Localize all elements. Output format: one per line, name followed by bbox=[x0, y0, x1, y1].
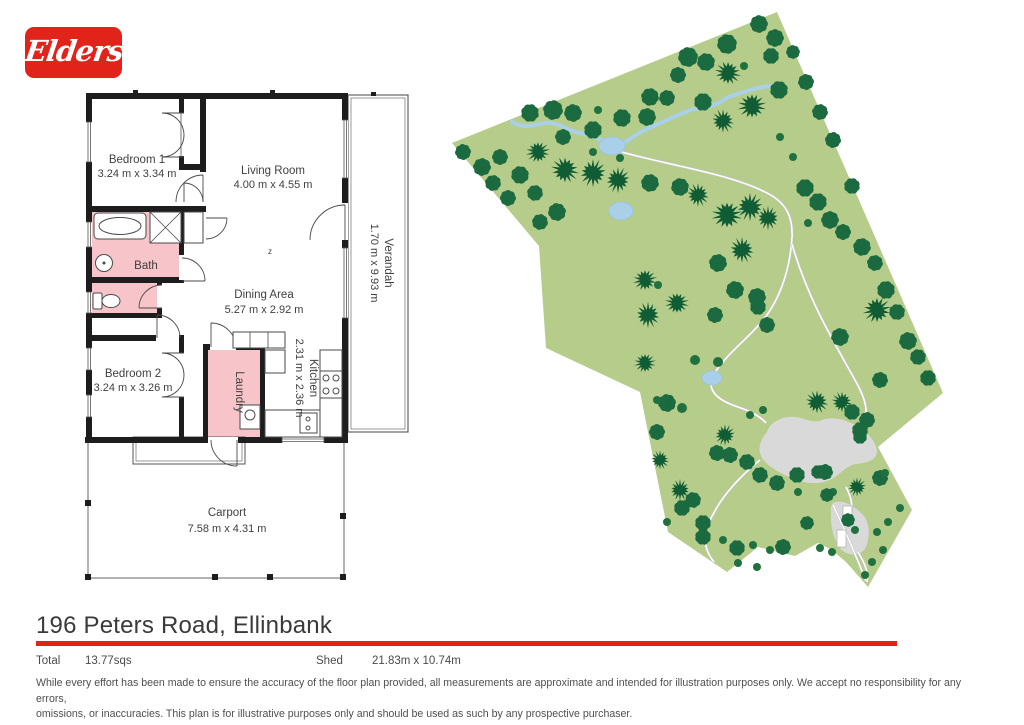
bedroom2-label: Bedroom 2 bbox=[105, 368, 161, 380]
laundry-label: Laundry bbox=[233, 371, 245, 413]
tree-dot-icon bbox=[794, 488, 802, 496]
tree-fluffy-icon bbox=[564, 104, 582, 122]
tree-fluffy-icon bbox=[759, 317, 775, 333]
kitchen-dims: 2.31 m x 2.36 m bbox=[293, 339, 305, 418]
toilet-cistern bbox=[93, 293, 102, 309]
floorplan-page: Elders bbox=[0, 0, 1024, 725]
tree-dot-icon bbox=[653, 396, 661, 404]
tree-dot-icon bbox=[879, 546, 887, 554]
tree-fluffy-icon bbox=[899, 332, 917, 350]
tree-dot-icon bbox=[881, 469, 889, 477]
tree-fluffy-icon bbox=[678, 47, 698, 67]
tree-fluffy-icon bbox=[659, 90, 675, 106]
tree-fluffy-icon bbox=[831, 328, 849, 346]
tree-fluffy-icon bbox=[649, 424, 665, 440]
tree-dot-icon bbox=[746, 411, 754, 419]
tree-dot-icon bbox=[804, 219, 812, 227]
tree-fluffy-icon bbox=[820, 488, 834, 502]
tree-dot-icon bbox=[753, 563, 761, 571]
tree-dot-icon bbox=[851, 526, 859, 534]
tree-fluffy-icon bbox=[835, 224, 851, 240]
tree-fluffy-icon bbox=[722, 447, 738, 463]
tree-dot-icon bbox=[713, 357, 723, 367]
tree-dot-icon bbox=[749, 541, 757, 549]
tree-fluffy-icon bbox=[707, 307, 723, 323]
closet bbox=[184, 212, 203, 243]
tree-fluffy-icon bbox=[750, 15, 768, 33]
tree-fluffy-icon bbox=[872, 372, 888, 388]
tree-fluffy-icon bbox=[841, 513, 855, 527]
total-value: 13.77sqs bbox=[85, 655, 132, 667]
tree-fluffy-icon bbox=[775, 539, 791, 555]
carport-dims: 7.58 m x 4.31 m bbox=[188, 523, 267, 535]
bedroom2-dims: 3.24 m x 3.26 m bbox=[94, 382, 173, 394]
kitchen-cabinet bbox=[265, 350, 285, 373]
dining-bench bbox=[233, 332, 285, 348]
tree-fluffy-icon bbox=[798, 74, 814, 90]
tree-fluffy-icon bbox=[769, 475, 785, 491]
pond bbox=[609, 202, 633, 220]
floor-plan: Bedroom 1 3.24 m x 3.34 m Living Room 4.… bbox=[80, 85, 420, 595]
tree-fluffy-icon bbox=[670, 67, 686, 83]
tree-fluffy-icon bbox=[555, 129, 571, 145]
dining-label: Dining Area bbox=[234, 289, 294, 301]
tree-dot-icon bbox=[789, 153, 797, 161]
tree-dot-icon bbox=[816, 544, 824, 552]
tree-fluffy-icon bbox=[766, 29, 784, 47]
tree-fluffy-icon bbox=[812, 104, 828, 120]
shed-building bbox=[837, 530, 846, 547]
tree-fluffy-icon bbox=[821, 211, 839, 229]
living-label: Living Room bbox=[241, 165, 305, 177]
tree-dot-icon bbox=[828, 548, 836, 556]
tree-fluffy-icon bbox=[500, 190, 516, 206]
tree-dot-icon bbox=[884, 518, 892, 526]
tree-dot-icon bbox=[896, 504, 904, 512]
tree-dot-icon bbox=[740, 62, 748, 70]
tree-fluffy-icon bbox=[473, 158, 491, 176]
kitchen-label: Kitchen bbox=[307, 359, 319, 397]
pond bbox=[599, 137, 625, 155]
elders-logo: Elders bbox=[25, 27, 122, 78]
shed-value: 21.83m x 10.74m bbox=[372, 655, 461, 667]
disclaimer-line2: omissions, or inaccuracies. This plan is… bbox=[36, 707, 988, 723]
tree-dot-icon bbox=[594, 106, 602, 114]
stove bbox=[320, 371, 342, 398]
toilet-bowl bbox=[102, 295, 120, 308]
tree-dot-icon bbox=[589, 148, 597, 156]
verandah-label: Verandah bbox=[382, 238, 394, 287]
tree-dot-icon bbox=[616, 154, 624, 162]
disclaimer-text: While every effort has been made to ensu… bbox=[36, 676, 988, 723]
bedroom1-label: Bedroom 1 bbox=[109, 154, 165, 166]
tree-fluffy-icon bbox=[786, 45, 800, 59]
bath-label: Bath bbox=[134, 260, 158, 272]
tree-fluffy-icon bbox=[867, 255, 883, 271]
tree-dot-icon bbox=[719, 536, 727, 544]
site-map bbox=[440, 0, 1024, 620]
tree-fluffy-icon bbox=[638, 108, 656, 126]
tree-dot-icon bbox=[663, 518, 671, 526]
total-label: Total bbox=[36, 655, 60, 667]
carport-label: Carport bbox=[208, 507, 247, 519]
property-address: 196 Peters Road, Ellinbank bbox=[36, 612, 332, 640]
living-dims: 4.00 m x 4.55 m bbox=[234, 179, 313, 191]
pond bbox=[702, 371, 722, 385]
tree-dot-icon bbox=[873, 528, 881, 536]
tree-dot-icon bbox=[690, 355, 700, 365]
accent-divider bbox=[36, 641, 897, 646]
tree-dot-icon bbox=[759, 406, 767, 414]
tree-fluffy-icon bbox=[492, 149, 508, 165]
dining-dims: 5.27 m x 2.92 m bbox=[225, 304, 304, 316]
tree-dot-icon bbox=[868, 558, 876, 566]
tree-dot-icon bbox=[776, 133, 784, 141]
bathtub bbox=[94, 213, 146, 239]
fan-symbol: z bbox=[268, 247, 272, 256]
tree-dot-icon bbox=[766, 546, 774, 554]
tree-fluffy-icon bbox=[709, 445, 725, 461]
elders-logo-text: Elders bbox=[22, 34, 125, 72]
tree-fluffy-icon bbox=[859, 412, 875, 428]
verandah-dims: 1.70 m x 9.93 m bbox=[368, 224, 380, 303]
shed-label: Shed bbox=[316, 655, 343, 667]
tree-dot-icon bbox=[654, 281, 662, 289]
bedroom1-dims: 3.24 m x 3.34 m bbox=[98, 168, 177, 180]
disclaimer-line1: While every effort has been made to ensu… bbox=[36, 676, 988, 707]
tree-dot-icon bbox=[734, 559, 742, 567]
tree-dot-icon bbox=[677, 403, 687, 413]
tree-dot-icon bbox=[861, 571, 869, 579]
